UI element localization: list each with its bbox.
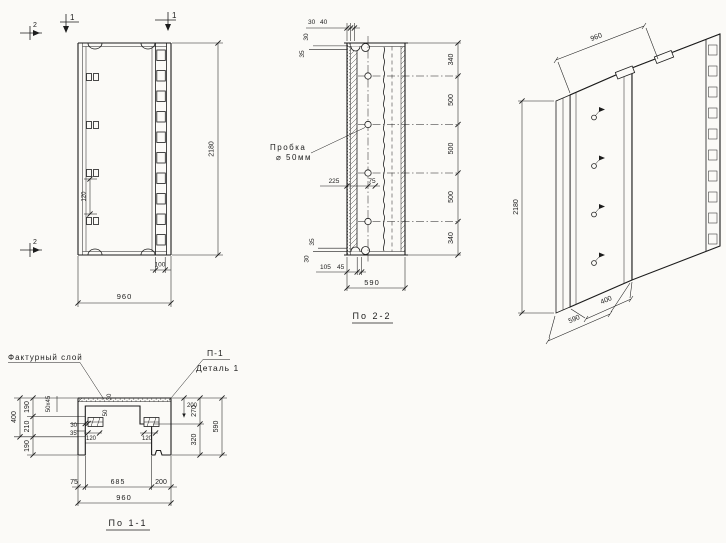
left-chain-0-text: 190 bbox=[24, 401, 31, 413]
dim-bottom-section1: 75 685 200 960 bbox=[70, 456, 177, 506]
dim-top-30-40: 30 40 bbox=[306, 19, 360, 41]
chain-text-3: 500 bbox=[448, 191, 455, 203]
dim-left-bottom-b-text: 30 bbox=[304, 255, 311, 263]
section-2-title: По 2-2 bbox=[352, 311, 393, 323]
section-1-title-text: По 1-1 bbox=[109, 518, 148, 528]
dim-plate-offset-text: 30 bbox=[70, 423, 77, 429]
p1-label-text: П-1 bbox=[207, 348, 224, 358]
left-chain-1-text: 210 bbox=[24, 421, 31, 433]
iso-dim-height-text: 2180 bbox=[513, 199, 520, 215]
dim-left-bottom: 35 30 bbox=[304, 238, 348, 263]
plug-label-line2: ⌀ 50мм bbox=[276, 153, 312, 162]
plug-axes bbox=[358, 36, 460, 262]
dim-key-text: 100 bbox=[155, 262, 166, 269]
isometric-view: 960 2180 400 590 bbox=[513, 23, 720, 344]
section-2-title-text: По 2-2 bbox=[353, 311, 392, 321]
iso-dim-width-text: 960 bbox=[590, 32, 604, 43]
dim-left-top-b-text: 35 bbox=[299, 50, 306, 58]
edge-hooks bbox=[87, 74, 99, 225]
section-mark-2-text: 2 bbox=[33, 22, 37, 29]
dim-height: 2180 bbox=[172, 40, 223, 257]
embedded-plates bbox=[88, 418, 159, 427]
dim-width-bottom-text: 960 bbox=[116, 493, 132, 502]
section-mark-2-text: 2 bbox=[33, 239, 37, 246]
dim-height-text: 2180 bbox=[209, 141, 216, 157]
section-mark-2-bottom: 2 bbox=[20, 239, 42, 257]
detail-label-text: Деталь 1 bbox=[196, 363, 239, 373]
dim-left-section1: 400 190 210 190 bbox=[11, 395, 78, 457]
left-chain-2-text: 190 bbox=[24, 440, 31, 452]
bottom-chain-2-text: 200 bbox=[155, 479, 167, 486]
chain-text-1: 500 bbox=[448, 94, 455, 106]
bottom-chain-0-text: 75 bbox=[70, 479, 78, 486]
section-mark-1-text: 1 bbox=[172, 11, 177, 20]
chain-text-2: 500 bbox=[448, 143, 455, 155]
section-1-title: По 1-1 bbox=[106, 518, 150, 530]
dim-plate-gap-text: 35 bbox=[70, 431, 77, 437]
dim-facing-text: 30 bbox=[107, 393, 113, 400]
dim-plug-offset-text: 225 bbox=[329, 178, 340, 185]
dim-right-chain: 340 500 500 500 340 bbox=[406, 40, 461, 257]
dim-left-top-a-text: 30 bbox=[303, 33, 310, 41]
left-overall-text: 400 bbox=[11, 411, 18, 423]
iso-panel-body bbox=[556, 34, 720, 313]
keyway-strip bbox=[152, 43, 167, 255]
dim-left-top: 30 35 bbox=[299, 33, 347, 58]
drawing-sheet: 120 1 1 2 2 2180 100 bbox=[0, 0, 726, 543]
chain-text-0: 340 bbox=[448, 54, 455, 66]
elevation-view: 120 1 1 2 2 2180 100 bbox=[20, 11, 223, 307]
dim-layer-text: 50 bbox=[103, 409, 109, 416]
dim-chamfer-text: 50х45 bbox=[46, 395, 52, 412]
plug-label-line1: Пробка bbox=[270, 143, 306, 152]
facing-layer-text: Фактурный слой bbox=[8, 353, 83, 362]
section-mark-2-top: 2 bbox=[20, 22, 42, 40]
bottom-chain-1-text: 685 bbox=[111, 479, 126, 486]
right-chain-0-text: 270 bbox=[191, 405, 198, 417]
dim-top-a-text: 30 bbox=[308, 19, 316, 26]
dim-plug-inner-text: 75 bbox=[368, 178, 376, 185]
section-2-2-view: Пробка ⌀ 50мм 30 40 30 35 225 75 35 30 bbox=[270, 19, 461, 323]
dim-bottom-b-text: 45 bbox=[337, 264, 345, 271]
iso-dim-depth-a-text: 400 bbox=[600, 295, 614, 306]
dim-bottom-a-text: 105 bbox=[320, 264, 331, 271]
chain-text-4: 340 bbox=[448, 232, 455, 244]
dim-plate-right-text: 120 bbox=[142, 436, 153, 442]
dim-width-text: 590 bbox=[364, 278, 380, 287]
section-mark-1-left: 1 bbox=[60, 13, 79, 33]
dim-depth-text: 590 bbox=[213, 421, 220, 433]
section-1-1-view: Фактурный слой П-1 Деталь 1 50х45 30 50 … bbox=[8, 348, 239, 530]
right-chain-1-text: 320 bbox=[191, 434, 198, 446]
dim-key: 100 bbox=[150, 257, 171, 273]
dim-plate-left-text: 120 bbox=[86, 436, 97, 442]
dim-hook-text: 120 bbox=[82, 191, 88, 202]
dim-bottom: 105 45 590 bbox=[316, 257, 408, 291]
dim-top-b-text: 40 bbox=[320, 19, 328, 26]
dim-width-text: 960 bbox=[117, 292, 133, 301]
detail-label: П-1 Деталь 1 bbox=[169, 348, 239, 401]
section-walls bbox=[344, 43, 408, 255]
section-mark-1-text: 1 bbox=[70, 13, 75, 22]
dim-hook-spacing: 120 bbox=[82, 176, 98, 216]
section-mark-1-right: 1 bbox=[155, 11, 177, 31]
iso-dim-depth-b-text: 590 bbox=[568, 314, 582, 325]
iso-dim-height: 2180 bbox=[513, 98, 554, 315]
dim-left-bottom-a-text: 35 bbox=[309, 238, 316, 246]
facing-layer-label: Фактурный слой bbox=[8, 353, 104, 400]
panel-technical-drawing: 120 1 1 2 2 2180 100 bbox=[0, 0, 726, 543]
